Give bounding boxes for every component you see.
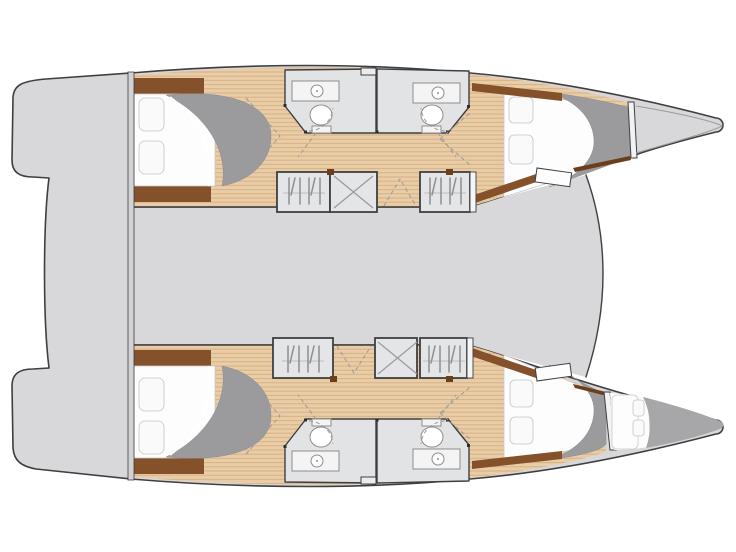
upper-lockers	[277, 169, 476, 212]
wardrobe	[277, 172, 330, 212]
wall-pillar	[470, 172, 476, 212]
pillow	[509, 97, 533, 123]
wardrobe	[420, 172, 470, 212]
pillow	[510, 417, 533, 444]
transom-bulkhead	[128, 72, 134, 480]
wall-post	[330, 376, 337, 382]
wall-post	[327, 169, 334, 175]
pillow	[510, 380, 533, 407]
pillow	[509, 135, 533, 164]
wall-post	[446, 376, 453, 382]
floor-plan-svg	[0, 0, 736, 552]
wardrobe	[273, 338, 333, 378]
wall-pillar	[467, 338, 473, 378]
wall-post	[446, 169, 453, 175]
catamaran-floor-plan	[0, 0, 736, 552]
pillow	[633, 400, 644, 416]
pillow	[633, 420, 644, 436]
